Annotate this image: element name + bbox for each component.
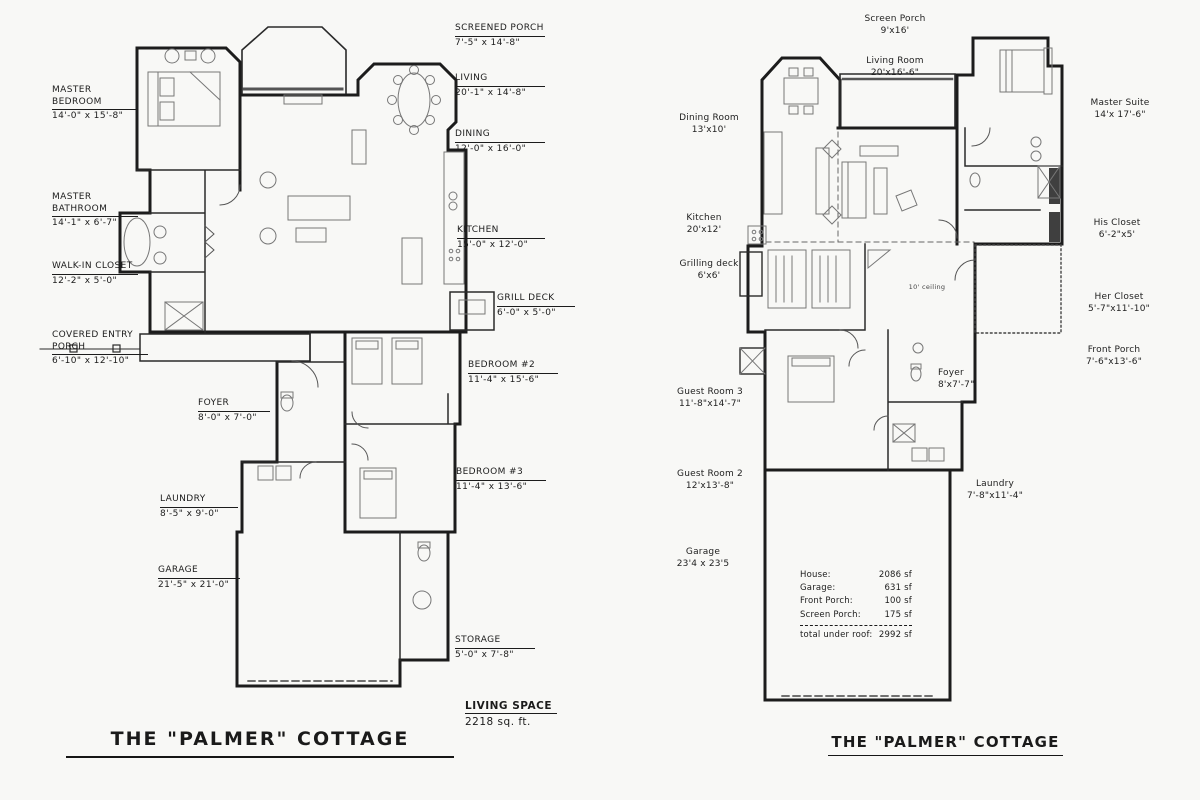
area-label: House:	[800, 569, 831, 582]
room-name: Kitchen	[668, 212, 740, 224]
label-dining: DINING12'-0" x 16'-0"	[455, 129, 545, 155]
room-dims: 6'-2"x5'	[1099, 230, 1135, 240]
room-name: STORAGE	[455, 635, 535, 649]
label-dining-room: Dining Room13'x10'	[665, 112, 753, 136]
room-dims: 7'-5" x 14'-8"	[455, 38, 520, 48]
floor-plan-drawings	[0, 0, 1200, 800]
room-dims: 8'x7'-7"	[938, 380, 974, 390]
room-dims: 5'-7"x11'-10"	[1088, 304, 1150, 314]
area-row-house: House:2086 sf	[800, 569, 912, 582]
room-dims: 11'-4" x 15'-6"	[468, 375, 539, 385]
room-name: Master Suite	[1075, 97, 1165, 109]
room-name: WALK-IN CLOSET	[52, 261, 138, 275]
label-kitchen-right: Kitchen20'x12'	[668, 212, 740, 236]
label-front-porch: Front Porch7'-6"x13'-6"	[1070, 344, 1158, 368]
room-name: DINING	[455, 129, 545, 143]
area-label: Screen Porch:	[800, 609, 861, 622]
left-plan-title: THE "PALMER" COTTAGE	[66, 728, 454, 758]
room-dims: 11'-8"x14'-7"	[679, 399, 741, 409]
room-name: Laundry	[955, 478, 1035, 490]
label-screen-porch: Screen Porch9'x16'	[850, 13, 940, 37]
label-bedroom-2: BEDROOM #211'-4" x 15'-6"	[468, 360, 558, 386]
living-space-note: LIVING SPACE 2218 sq. ft.	[465, 700, 557, 728]
area-table: House:2086 sf Garage:631 sf Front Porch:…	[800, 569, 912, 642]
label-storage: STORAGE5'-0" x 7'-8"	[455, 635, 535, 661]
room-name: Living Room	[845, 55, 945, 67]
area-label: Front Porch:	[800, 595, 853, 608]
room-dims: 14'x 17'-6"	[1094, 110, 1145, 120]
area-label: total under roof:	[800, 629, 872, 642]
room-dims: 7'-6"x13'-6"	[1086, 357, 1142, 367]
room-dims: 13'x10'	[692, 125, 727, 135]
room-dims: 7'-8"x11'-4"	[967, 491, 1023, 501]
area-row-screen-porch: Screen Porch:175 sf	[800, 609, 912, 622]
room-dims: 5'-0" x 7'-8"	[455, 650, 514, 660]
room-dims: 20'x16'-6"	[871, 68, 919, 78]
room-name: Garage	[662, 546, 744, 558]
room-name: SCREENED PORCH	[455, 23, 545, 37]
room-name: MASTER BEDROOM	[52, 85, 138, 110]
label-guest-room-2: Guest Room 212'x13'-8"	[664, 468, 756, 492]
room-name: Dining Room	[665, 112, 753, 124]
room-dims: 12'-2" x 5'-0"	[52, 276, 117, 286]
area-row-front-porch: Front Porch:100 sf	[800, 595, 912, 608]
room-name: GARAGE	[158, 565, 240, 579]
room-dims: 12'-0" x 16'-0"	[455, 144, 526, 154]
room-name: Her Closet	[1076, 291, 1162, 303]
living-space-label: LIVING SPACE	[465, 700, 557, 714]
room-name: BEDROOM #2	[468, 360, 558, 374]
area-value: 100 sf	[884, 595, 912, 608]
label-laundry-right: Laundry7'-8"x11'-4"	[955, 478, 1035, 502]
room-name: KITCHEN	[457, 225, 545, 239]
room-dims: 20'x12'	[687, 225, 722, 235]
room-name: FOYER	[198, 398, 270, 412]
room-dims: 14'-0" x 15'-8"	[52, 111, 123, 121]
room-dims: 8'-0" x 7'-0"	[198, 413, 257, 423]
room-name: LIVING	[455, 73, 545, 87]
room-dims: 8'-5" x 9'-0"	[160, 509, 219, 519]
label-laundry: LAUNDRY8'-5" x 9'-0"	[160, 494, 238, 520]
area-value: 175 sf	[884, 609, 912, 622]
label-garage-left: GARAGE21'-5" x 21'-0"	[158, 565, 240, 591]
ceiling-note: 10' ceiling	[898, 283, 956, 291]
area-value: 2086 sf	[879, 569, 912, 582]
room-name: COVERED ENTRY PORCH	[52, 330, 148, 355]
label-guest-room-3: Guest Room 311'-8"x14'-7"	[664, 386, 756, 410]
area-row-garage: Garage:631 sf	[800, 582, 912, 595]
room-name: Grilling deck	[660, 258, 758, 270]
room-name: Front Porch	[1070, 344, 1158, 356]
room-name: Guest Room 3	[664, 386, 756, 398]
label-walk-in-closet: WALK-IN CLOSET12'-2" x 5'-0"	[52, 261, 138, 287]
room-dims: 6'-0" x 5'-0"	[497, 308, 556, 318]
label-grilling-deck: Grilling deck6'x6'	[660, 258, 758, 282]
room-dims: 21'-5" x 21'-0"	[158, 580, 229, 590]
room-name: GRILL DECK	[497, 293, 575, 307]
room-dims: 20'-1" x 14'-8"	[455, 88, 526, 98]
room-dims: 6'x6'	[698, 271, 721, 281]
label-master-bathroom: MASTER BATHROOM14'-1" x 6'-7"	[52, 192, 138, 230]
room-name: Guest Room 2	[664, 468, 756, 480]
room-dims: 15'-0" x 12'-0"	[457, 240, 528, 250]
label-master-bedroom: MASTER BEDROOM14'-0" x 15'-8"	[52, 85, 138, 123]
label-living-room: Living Room20'x16'-6"	[845, 55, 945, 79]
label-garage-right: Garage23'4 x 23'5	[662, 546, 744, 570]
room-name: Foyer	[938, 367, 998, 379]
floor-plan-sheet: MASTER BEDROOM14'-0" x 15'-8" MASTER BAT…	[0, 0, 1200, 800]
living-space-value: 2218 sq. ft.	[465, 716, 531, 728]
room-dims: 9'x16'	[881, 26, 910, 36]
label-bedroom-3: BEDROOM #311'-4" x 13'-6"	[456, 467, 546, 493]
room-dims: 6'-10" x 12'-10"	[52, 356, 129, 366]
room-dims: 12'x13'-8"	[686, 481, 734, 491]
right-plan-title: THE "PALMER" COTTAGE	[828, 733, 1063, 756]
label-kitchen: KITCHEN15'-0" x 12'-0"	[457, 225, 545, 251]
room-dims: 14'-1" x 6'-7"	[52, 218, 117, 228]
room-name: His Closet	[1078, 217, 1156, 229]
label-his-closet: His Closet6'-2"x5'	[1078, 217, 1156, 241]
room-name: LAUNDRY	[160, 494, 238, 508]
area-value: 2992 sf	[879, 629, 912, 642]
label-her-closet: Her Closet5'-7"x11'-10"	[1076, 291, 1162, 315]
label-covered-entry-porch: COVERED ENTRY PORCH6'-10" x 12'-10"	[52, 330, 148, 368]
room-dims: 11'-4" x 13'-6"	[456, 482, 527, 492]
label-foyer-right: Foyer8'x7'-7"	[938, 367, 998, 391]
room-name: BEDROOM #3	[456, 467, 546, 481]
label-screened-porch: SCREENED PORCH7'-5" x 14'-8"	[455, 23, 545, 49]
area-label: Garage:	[800, 582, 835, 595]
label-living: LIVING20'-1" x 14'-8"	[455, 73, 545, 99]
area-row-total: total under roof:2992 sf	[800, 625, 912, 642]
label-master-suite: Master Suite14'x 17'-6"	[1075, 97, 1165, 121]
label-foyer: FOYER8'-0" x 7'-0"	[198, 398, 270, 424]
room-name: MASTER BATHROOM	[52, 192, 138, 217]
area-value: 631 sf	[884, 582, 912, 595]
room-name: Screen Porch	[850, 13, 940, 25]
room-dims: 23'4 x 23'5	[677, 559, 730, 569]
label-grill-deck: GRILL DECK6'-0" x 5'-0"	[497, 293, 575, 319]
